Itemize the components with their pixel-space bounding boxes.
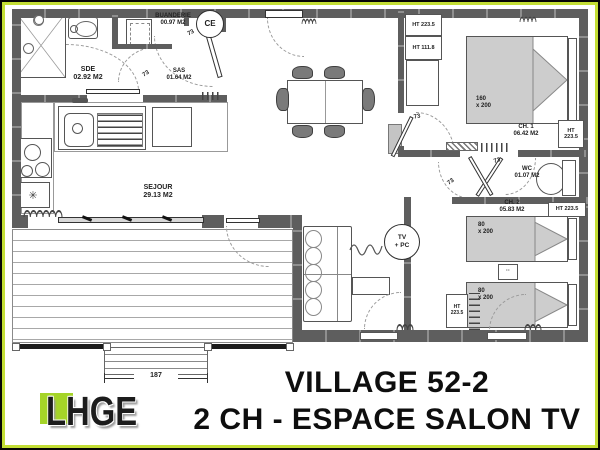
sofa-divider (304, 274, 351, 275)
dining-chair (292, 66, 313, 79)
room-name: SAS (173, 68, 185, 74)
bed-size-label: 80 x 200 (478, 288, 493, 302)
door-leaf (86, 89, 140, 94)
page-title: VILLAGE 52-2 2 CH - ESPACE SALON TV (188, 364, 586, 438)
closet-label: 223.5 (451, 311, 464, 317)
coffee-table (352, 277, 390, 295)
closet-ht-223: HT 223.5 (548, 202, 586, 217)
headboard (568, 218, 577, 260)
wall (404, 197, 411, 330)
kitchen-sink (58, 106, 146, 150)
wall (114, 44, 172, 49)
coil-symbol-icon (302, 15, 316, 24)
closet-label: HT 223.5 (412, 22, 435, 28)
bed-size: 160 (476, 96, 486, 102)
bed-size: x 200 (478, 295, 493, 302)
deck-post (12, 343, 20, 351)
entry-door-leaf (265, 10, 303, 18)
tap-icon (72, 98, 88, 103)
room-label-ch1: CH. 1 06.42 M2 (500, 124, 552, 138)
headboard (568, 284, 577, 326)
room-name: SDE (81, 66, 95, 73)
burner-icon (24, 144, 41, 161)
room-area: 05.83 M2 (488, 207, 536, 214)
door-arc (364, 292, 401, 329)
room-name: BUANDERIE (155, 13, 191, 19)
logo-text: LHGE (46, 388, 137, 435)
cable-squiggle-icon (350, 238, 386, 252)
floor-plan-sheet: SDE 02.92 M2 73 BUANDERIE 00.97 M2 CE SA… (0, 0, 600, 450)
sofa-cushion (305, 230, 322, 248)
closet-ht-223: HT 223.5 (405, 14, 442, 36)
entry-door-arc (267, 18, 304, 57)
wall (398, 150, 460, 157)
room-area: 01.07 M2 (505, 173, 549, 180)
door-width-label: 73 (493, 157, 502, 166)
closet-label: HT 223.5 (556, 206, 579, 212)
wall (258, 215, 302, 228)
wall (293, 228, 302, 332)
wall (112, 9, 118, 49)
deck-rail (210, 344, 293, 349)
dining-chair (362, 88, 375, 111)
closet-label: 223.5 (564, 134, 578, 140)
coil-symbol-icon (397, 320, 413, 330)
dimension-tick (104, 373, 105, 383)
door-leaf (226, 218, 260, 223)
room-area: 01.64 M2 (148, 75, 210, 82)
bench-slats (481, 143, 508, 152)
room-area: 00.97 M2 (142, 20, 204, 27)
sofa-cushion (305, 298, 322, 316)
bed-size: x 200 (476, 103, 491, 110)
washbasin (68, 17, 98, 39)
room-area: 06.42 M2 (500, 131, 552, 138)
closet (406, 60, 439, 106)
drainboard (97, 113, 143, 147)
radiator (446, 142, 478, 151)
closet-ht-111: HT 111.8 (405, 36, 442, 60)
dining-chair (276, 88, 289, 111)
bed-size: x 200 (478, 229, 493, 236)
room-area: 29.13 M2 (126, 192, 190, 200)
dining-chair (324, 66, 345, 79)
tv-label: TV (398, 234, 406, 242)
door-width-label: 73 (413, 113, 421, 121)
deck-dimension-label: 187 (134, 372, 178, 380)
closet-label: HT 111.8 (412, 45, 434, 51)
shower-head-icon (34, 15, 44, 25)
burner-icon (21, 165, 33, 177)
room-label-ch2: CH. 2 05.83 M2 (488, 200, 536, 214)
deck-rail (14, 344, 104, 349)
title-line2: 2 CH - ESPACE SALON TV (188, 401, 586, 438)
sofa-cushion (305, 281, 322, 299)
room-name: WC (522, 166, 532, 172)
doormat (202, 92, 222, 100)
room-name: SEJOUR (144, 184, 173, 191)
bed-double (466, 36, 568, 124)
ce-badge: CE (196, 10, 224, 38)
pc-label: + PC (395, 242, 410, 250)
title-line1: VILLAGE 52-2 (188, 364, 586, 401)
ce-label: CE (204, 19, 215, 28)
headboard (568, 38, 577, 122)
room-label-sas: SAS 01.64 M2 (148, 68, 210, 82)
sofa-cushion (305, 247, 322, 265)
deck-post (103, 343, 111, 351)
wardrobe-ht-223: HT 223.5 (446, 294, 468, 328)
wall (202, 215, 224, 228)
deck-post (286, 343, 294, 351)
bed-size-label: 80 x 200 (478, 222, 493, 236)
snowflake-icon: ✳ (28, 189, 37, 202)
sink-drain-icon (72, 123, 83, 134)
room-label-sde: SDE 02.92 M2 (58, 66, 118, 83)
window (487, 332, 527, 340)
dining-chair (292, 125, 313, 138)
nightstand: ·· (498, 264, 518, 280)
tap-icon (70, 25, 78, 33)
closet-ht-223: HT 223.5 (558, 120, 584, 148)
wall (12, 9, 21, 228)
room-area: 02.92 M2 (58, 74, 118, 82)
wall (579, 9, 588, 342)
toilet-tank (562, 160, 576, 196)
deck-post (204, 343, 212, 351)
wall (293, 330, 588, 342)
burner-icon (35, 162, 50, 177)
bed-size-label: 160 x 200 (476, 96, 491, 110)
sofa-cushion (305, 264, 322, 282)
dining-chair (324, 125, 345, 138)
washbasin-bowl (75, 21, 97, 37)
coil-symbol-icon (24, 205, 62, 217)
wall (398, 9, 404, 113)
window (360, 332, 398, 340)
coil-symbol-icon (520, 13, 536, 22)
wall (518, 150, 588, 157)
coil-symbol-icon (525, 320, 541, 330)
room-label-wc: WC 01.07 M2 (505, 166, 549, 180)
bed-size: 80 (478, 222, 485, 228)
shower-drain-icon (23, 43, 34, 54)
dishwasher (152, 107, 192, 147)
nightstand-dots: ·· (506, 268, 510, 275)
sofa (303, 226, 352, 322)
tv-pc-badge: TV + PC (384, 224, 420, 260)
room-label-buanderie: BUANDERIE 00.97 M2 (142, 13, 204, 27)
room-name: CH. 1 (518, 124, 533, 130)
room-name: CH. 2 (504, 200, 519, 206)
cooktop (16, 138, 52, 178)
bed-size: 80 (478, 288, 485, 294)
table-divider (325, 81, 326, 123)
room-label-sejour: SEJOUR 29.13 M2 (126, 184, 190, 201)
